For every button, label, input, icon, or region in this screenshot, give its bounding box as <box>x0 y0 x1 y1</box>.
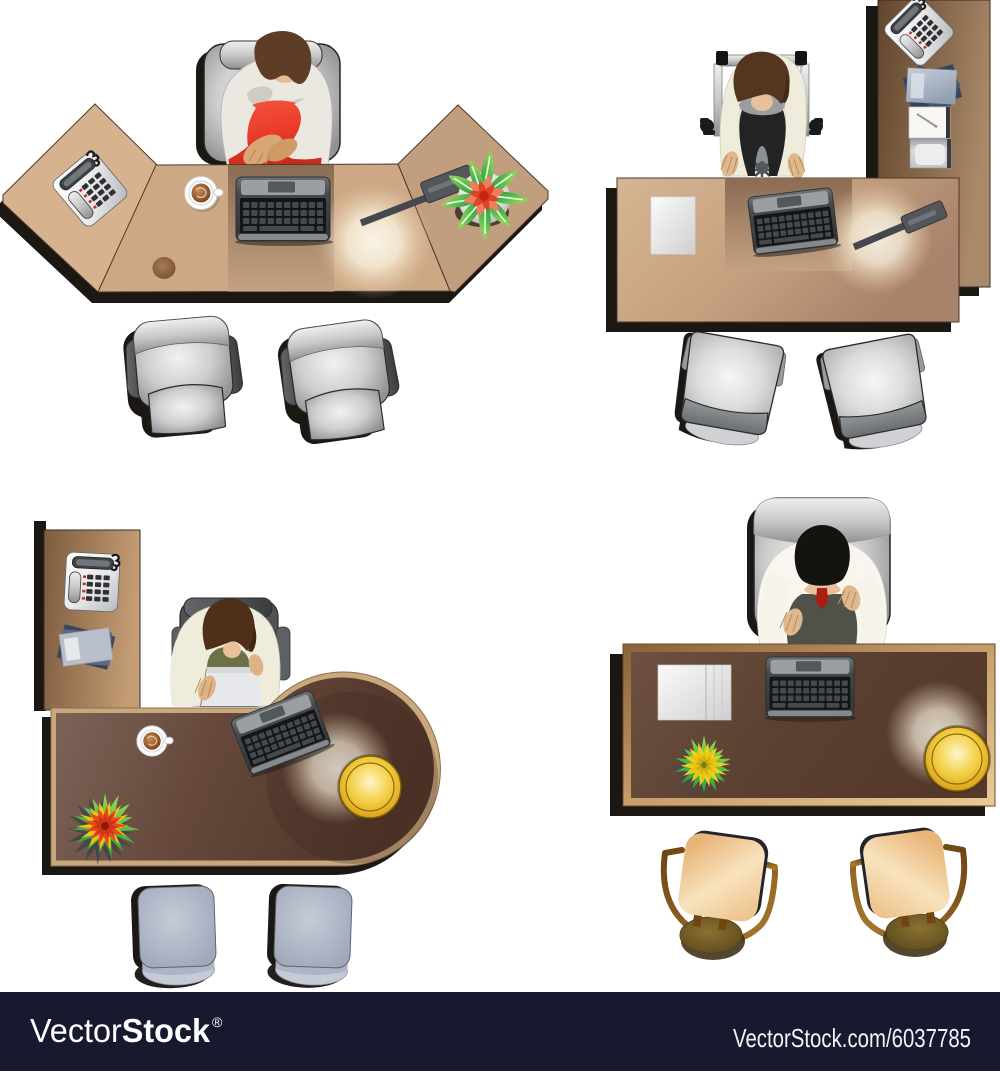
svg-text:VectorStock.com/6037785: VectorStock.com/6037785 <box>733 1023 971 1053</box>
svg-text:VectorStock: VectorStock <box>30 1012 211 1049</box>
svg-text:®: ® <box>212 1014 223 1030</box>
